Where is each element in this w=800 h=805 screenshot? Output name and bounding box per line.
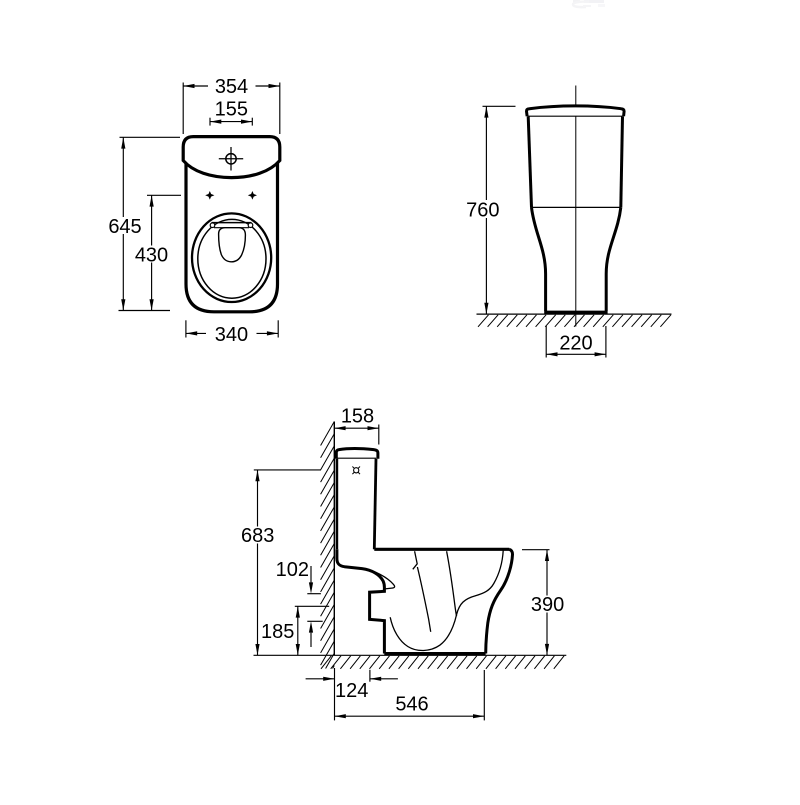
- svg-text:155: 155: [215, 98, 248, 120]
- svg-text:185: 185: [261, 621, 294, 643]
- svg-text:430: 430: [135, 244, 168, 266]
- svg-text:683: 683: [241, 525, 274, 547]
- svg-text:340: 340: [215, 324, 248, 346]
- svg-text:546: 546: [395, 694, 428, 716]
- svg-text:645: 645: [108, 216, 141, 238]
- svg-text:760: 760: [466, 200, 499, 222]
- svg-text:124: 124: [335, 680, 368, 702]
- svg-text:158: 158: [341, 406, 374, 428]
- svg-text:354: 354: [215, 76, 248, 98]
- svg-text:102: 102: [276, 559, 309, 581]
- svg-text:220: 220: [559, 333, 592, 355]
- svg-text:390: 390: [531, 594, 564, 616]
